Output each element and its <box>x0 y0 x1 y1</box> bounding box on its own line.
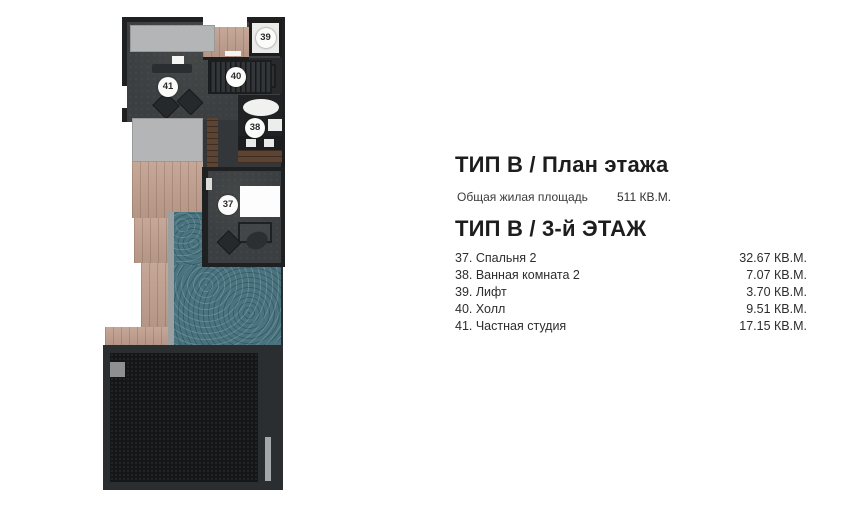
bathroom-sink-counter <box>268 119 282 131</box>
studio-terrace-planter <box>130 25 215 52</box>
room-label: 41. Частная студия <box>455 318 566 335</box>
total-area-value: 511 КВ.М. <box>617 190 671 204</box>
room-area: 32.67 КВ.М. <box>739 250 807 267</box>
plan-title: ТИП B / План этажа <box>455 152 668 178</box>
room-list: 37. Спальня 2 32.67 КВ.М. 38. Ванная ком… <box>455 250 807 335</box>
room-list-row: 37. Спальня 2 32.67 КВ.М. <box>455 250 807 267</box>
room-area: 3.70 КВ.М. <box>746 284 807 301</box>
floor-plan: 39 40 41 38 <box>0 0 360 519</box>
total-area-label: Общая жилая площадь <box>457 190 588 204</box>
roof-inner-surface <box>110 353 258 482</box>
room-area: 7.07 КВ.М. <box>746 267 807 284</box>
deck-step-out <box>105 327 171 345</box>
room-badge-elevator: 39 <box>256 28 276 48</box>
balcony-door-mark <box>225 51 241 56</box>
studio-door-gap <box>122 86 127 108</box>
bathroom-vanity-counter <box>238 136 282 150</box>
bedroom-floor <box>208 171 281 263</box>
room-list-row: 41. Частная студия 17.15 КВ.М. <box>455 318 807 335</box>
room-elevator: 39 <box>249 20 282 56</box>
room-label: 40. Холл <box>455 301 505 318</box>
room-list-row: 38. Ванная комната 2 7.07 КВ.М. <box>455 267 807 284</box>
pool-wide <box>174 265 283 345</box>
room-list-row: 39. Лифт 3.70 КВ.М. <box>455 284 807 301</box>
room-list-row: 40. Холл 9.51 КВ.М. <box>455 301 807 318</box>
bedroom-door-mark <box>206 178 212 190</box>
room-badge-hall: 40 <box>226 67 246 87</box>
roof-skylight <box>110 362 125 377</box>
mid-terrace-planter <box>132 118 203 162</box>
bathtub <box>243 99 279 116</box>
deck-lower <box>141 263 171 327</box>
roof-vent-strip <box>265 437 271 481</box>
floor-title: ТИП B / 3-й ЭТАЖ <box>455 216 646 242</box>
roof-block <box>103 345 283 490</box>
room-area: 17.15 КВ.М. <box>739 318 807 335</box>
page: 39 40 41 38 <box>0 0 861 519</box>
room-label: 37. Спальня 2 <box>455 250 537 267</box>
pool-narrow <box>174 212 202 265</box>
room-badge-studio: 41 <box>158 77 178 97</box>
bathroom-basin-left <box>246 139 256 147</box>
studio-desk-lamp <box>172 56 184 64</box>
room-label: 38. Ванная комната 2 <box>455 267 580 284</box>
bathroom-basin-right <box>264 139 274 147</box>
total-area-row: Общая жилая площадь 511 КВ.М. <box>457 190 807 204</box>
room-label: 39. Лифт <box>455 284 507 301</box>
room-badge-bedroom: 37 <box>218 195 238 215</box>
studio-desk <box>152 64 192 73</box>
room-area: 9.51 КВ.М. <box>746 301 807 318</box>
deck-upper <box>132 162 203 218</box>
bedroom-bed <box>240 186 280 217</box>
room-badge-bathroom: 38 <box>245 118 265 138</box>
bathroom-wood-shelf <box>238 150 282 163</box>
deck-mid <box>134 218 171 263</box>
